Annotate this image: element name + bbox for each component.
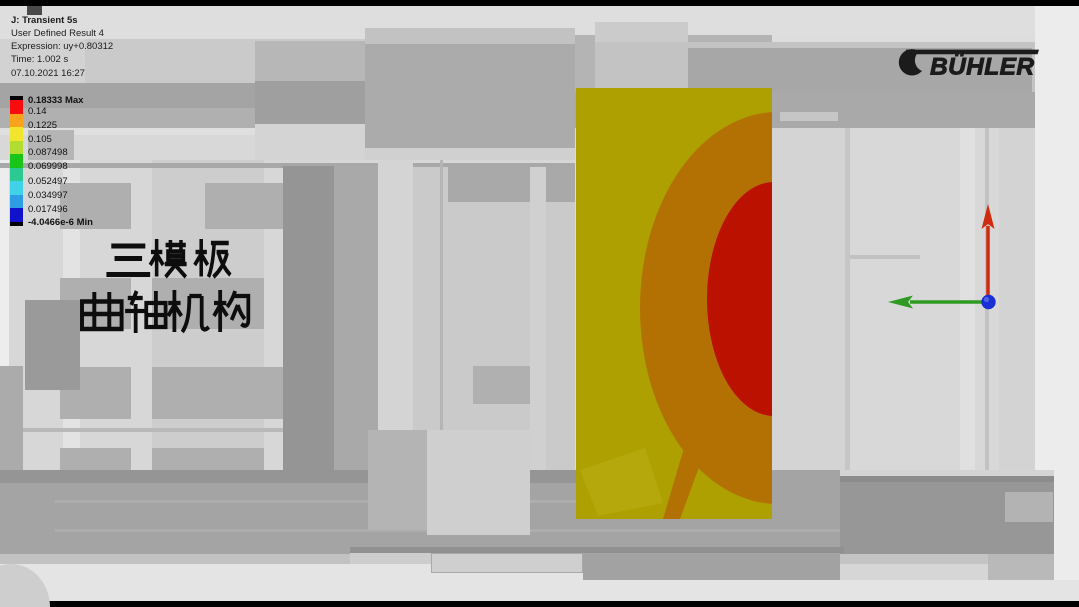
svg-text:BÜHLER: BÜHLER: [930, 54, 1034, 81]
